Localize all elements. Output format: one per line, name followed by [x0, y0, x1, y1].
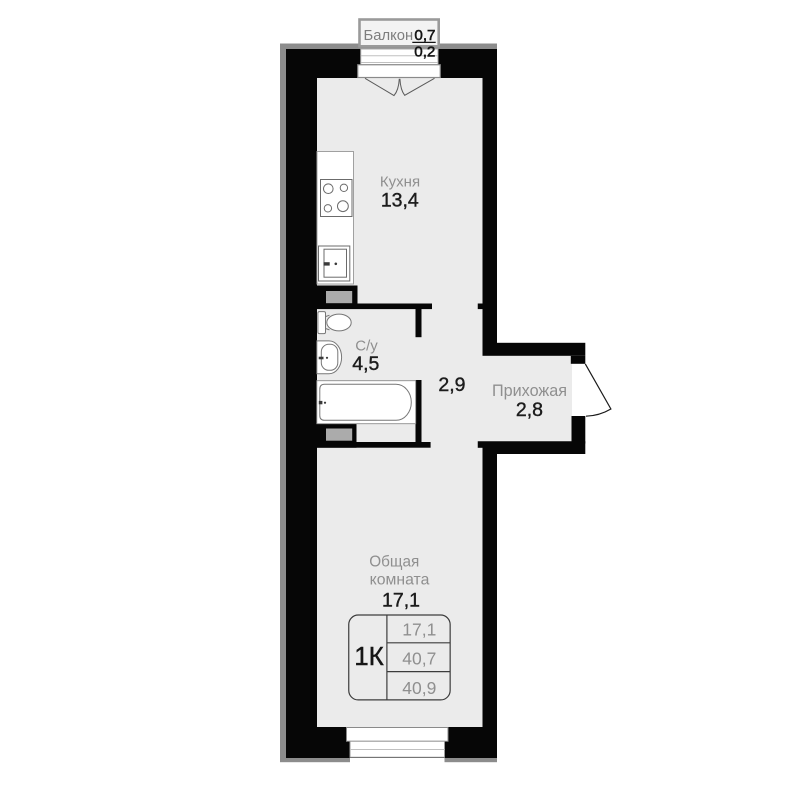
svg-text:0,2: 0,2: [414, 44, 435, 61]
svg-text:40,9: 40,9: [402, 678, 436, 698]
svg-text:комната: комната: [370, 572, 430, 589]
svg-text:Общая: Общая: [369, 554, 419, 571]
svg-text:2,9: 2,9: [438, 374, 465, 396]
svg-text:Балкон: Балкон: [364, 28, 414, 44]
svg-text:0,7: 0,7: [414, 27, 435, 44]
svg-text:1К: 1К: [354, 641, 384, 671]
svg-text:2,8: 2,8: [516, 399, 543, 421]
svg-text:Кухня: Кухня: [380, 173, 420, 190]
svg-text:13,4: 13,4: [381, 189, 419, 211]
svg-text:Прихожая: Прихожая: [492, 382, 567, 400]
svg-text:17,1: 17,1: [402, 620, 436, 640]
svg-text:4,5: 4,5: [352, 353, 379, 375]
svg-text:40,7: 40,7: [402, 649, 436, 669]
svg-text:17,1: 17,1: [382, 589, 420, 611]
